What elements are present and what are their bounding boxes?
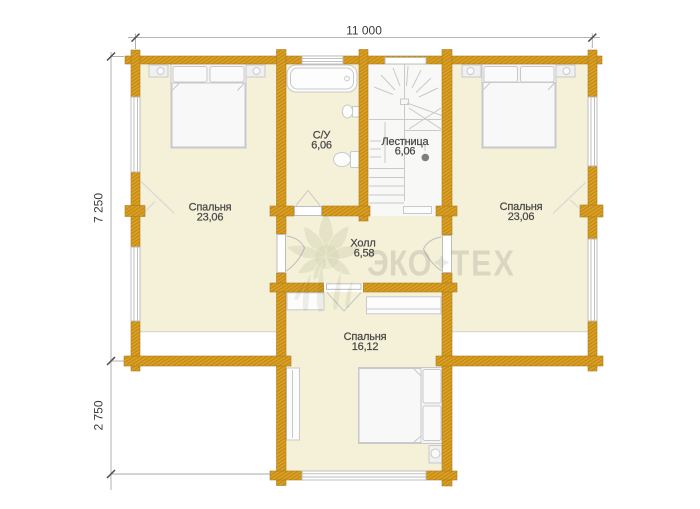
svg-text:2 750: 2 750 <box>92 400 106 430</box>
svg-text:23,06: 23,06 <box>197 212 224 224</box>
svg-text:23,06: 23,06 <box>508 211 535 223</box>
svg-text:7 250: 7 250 <box>92 193 106 223</box>
svg-text:6,06: 6,06 <box>395 146 416 158</box>
svg-text:6,06: 6,06 <box>311 140 332 152</box>
svg-text:11 000: 11 000 <box>346 24 382 38</box>
svg-text:ТЕХ: ТЕХ <box>451 244 516 284</box>
svg-text:ЭКО: ЭКО <box>367 244 432 284</box>
svg-text:16,12: 16,12 <box>352 341 379 353</box>
svg-text:6,58: 6,58 <box>354 248 375 260</box>
